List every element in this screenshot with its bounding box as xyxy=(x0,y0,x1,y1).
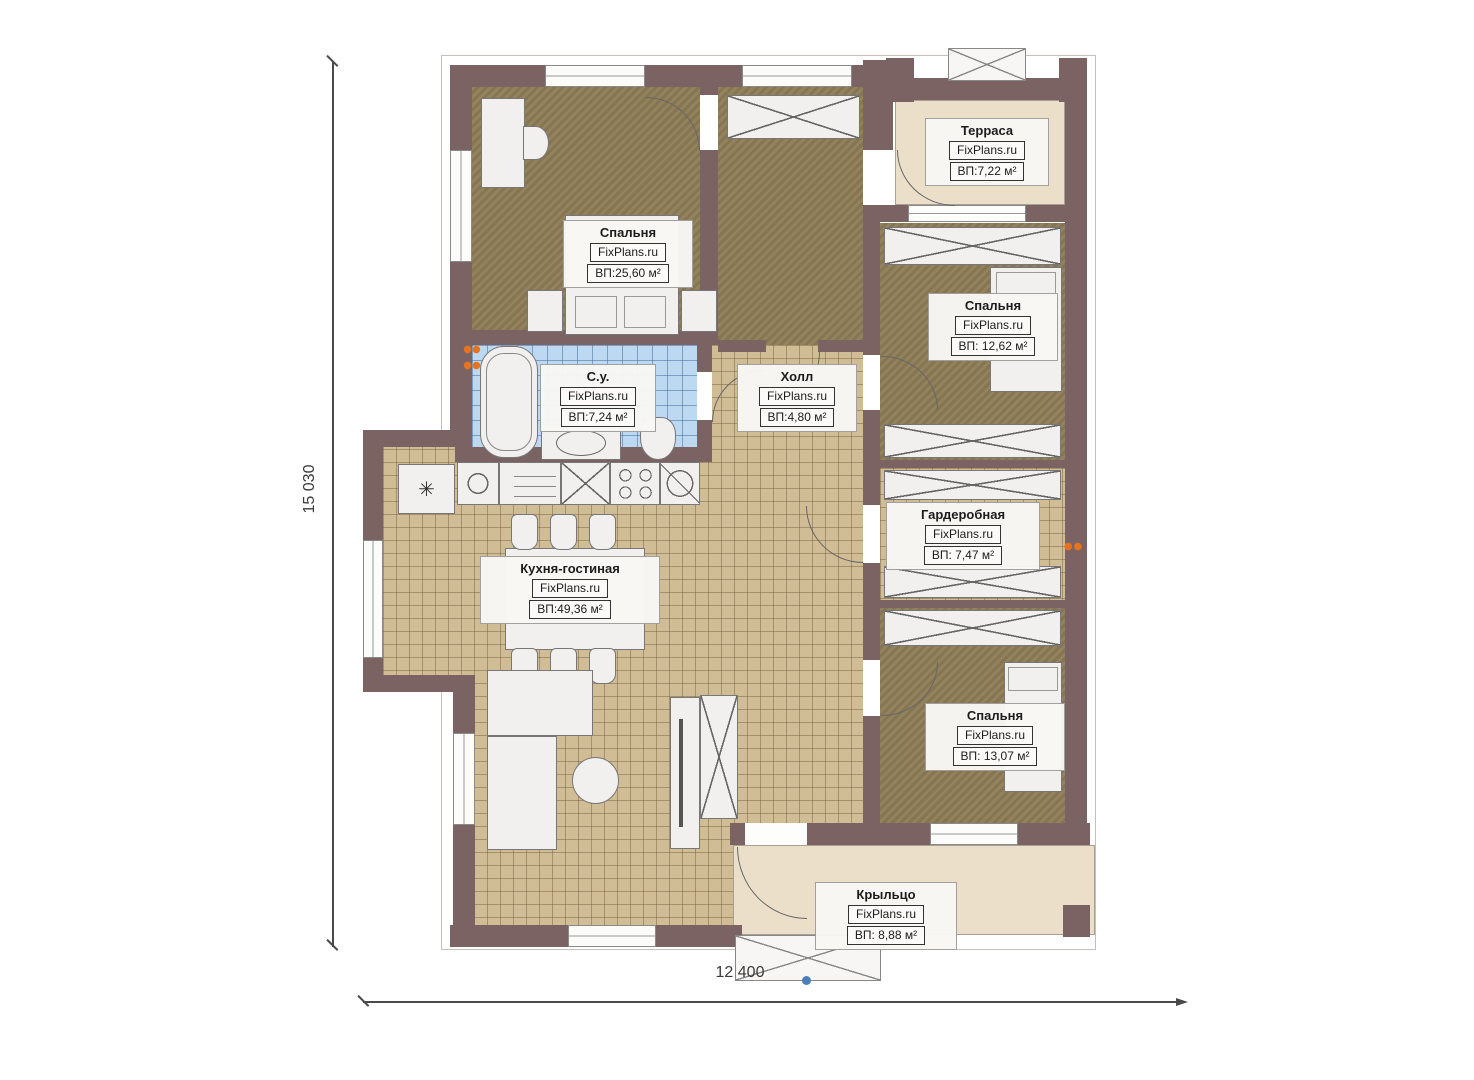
room-area: ВП:7,22 м² xyxy=(950,162,1025,181)
room-name: Спальня xyxy=(965,298,1021,314)
pillow xyxy=(624,296,666,328)
room-brand: FixPlans.ru xyxy=(955,316,1031,335)
room-name: Спальня xyxy=(967,708,1023,724)
room-area: ВП:25,60 м² xyxy=(587,264,669,283)
window xyxy=(363,540,383,658)
wall-segment xyxy=(880,600,1065,608)
chair xyxy=(511,514,538,550)
steps-marker-dot xyxy=(802,976,811,985)
room-label-kitchen-living: Кухня-гостиная FixPlans.ru ВП:49,36 м² xyxy=(480,556,660,624)
wall-segment xyxy=(863,222,880,355)
window xyxy=(450,150,472,262)
room-label-bedroom-3: Спальня FixPlans.ru ВП: 13,07 м² xyxy=(925,703,1065,771)
desk-chair xyxy=(523,126,549,160)
tv-icon xyxy=(679,719,683,827)
desk xyxy=(481,98,525,188)
wardrobe-cabinet xyxy=(884,566,1061,598)
window xyxy=(568,925,656,947)
wall-segment xyxy=(880,460,1065,468)
wall-segment xyxy=(700,87,718,95)
wardrobe-cabinet xyxy=(884,470,1061,500)
room-brand: FixPlans.ru xyxy=(590,243,666,262)
dimension-arrow xyxy=(1176,998,1188,1006)
radiator-icon xyxy=(1062,540,1084,553)
height-dimension-label: 15 030 xyxy=(301,444,323,534)
pillow xyxy=(575,296,617,328)
wall-segment xyxy=(718,340,766,352)
kitchen-cabinet-icon xyxy=(561,462,610,505)
corner-sink-icon xyxy=(457,462,499,505)
room-brand: FixPlans.ru xyxy=(560,387,636,406)
room-name: Терраса xyxy=(961,123,1013,139)
wall-segment xyxy=(863,716,880,823)
window xyxy=(453,733,475,825)
wardrobe-cabinet xyxy=(884,227,1061,265)
room-name: Гардеробная xyxy=(921,507,1005,523)
window xyxy=(742,65,852,87)
chair xyxy=(589,648,616,684)
window xyxy=(545,65,645,87)
room-label-bedroom-1: Спальня FixPlans.ru ВП:25,60 м² xyxy=(563,220,693,288)
room-label-bedroom-2: Спальня FixPlans.ru ВП: 12,62 м² xyxy=(928,293,1058,361)
stove-icon xyxy=(610,462,660,505)
radiator-icon xyxy=(462,344,482,355)
floor-plan-canvas: ✳ Спальня FixPlans.ru ВП:25,60 м² Террас… xyxy=(0,0,1474,1080)
room-name: Кухня-гостиная xyxy=(520,561,620,577)
pillow xyxy=(1008,667,1058,691)
width-dimension-label: 12 400 xyxy=(690,964,790,984)
wardrobe-cabinet xyxy=(884,610,1061,646)
window xyxy=(930,823,1018,845)
vertical-dimension-line xyxy=(332,62,334,947)
wall-segment xyxy=(697,345,712,372)
freezer-icon: ✳ xyxy=(398,464,455,514)
room-area: ВП: 8,88 м² xyxy=(847,926,925,945)
sofa xyxy=(487,670,593,736)
room-brand: FixPlans.ru xyxy=(925,525,1001,544)
window xyxy=(908,205,1026,222)
room-name: Крыльцо xyxy=(856,887,915,903)
room-label-wardrobe-room: Гардеробная FixPlans.ru ВП: 7,47 м² xyxy=(886,502,1040,570)
door-opening xyxy=(745,823,807,845)
room-name: С.у. xyxy=(587,369,610,385)
room-area: ВП: 13,07 м² xyxy=(953,747,1038,766)
room-brand: FixPlans.ru xyxy=(532,579,608,598)
room-name: Спальня xyxy=(600,225,656,241)
wardrobe-cabinet xyxy=(700,695,738,819)
fridge-icon xyxy=(660,462,700,505)
room-brand: FixPlans.ru xyxy=(957,726,1033,745)
room-area: ВП:4,80 м² xyxy=(760,408,835,427)
radiator-icon xyxy=(462,360,482,371)
wall-segment xyxy=(818,340,863,352)
chair xyxy=(550,514,577,550)
sink-basin xyxy=(556,430,606,456)
chair xyxy=(589,514,616,550)
bathtub-inner xyxy=(486,353,532,451)
sofa xyxy=(487,736,557,850)
terrace-pillar xyxy=(1059,58,1087,102)
horizontal-dimension-line xyxy=(363,1001,1185,1003)
room-label-porch: Крыльцо FixPlans.ru ВП: 8,88 м² xyxy=(815,882,957,950)
coffee-table xyxy=(572,757,619,804)
room-name: Холл xyxy=(781,369,814,385)
wall-segment xyxy=(893,78,1087,100)
room-brand: FixPlans.ru xyxy=(848,905,924,924)
wall-segment xyxy=(863,563,880,660)
terrace-steps xyxy=(948,48,1026,81)
room-brand: FixPlans.ru xyxy=(949,141,1025,160)
room-area: ВП: 7,47 м² xyxy=(924,546,1002,565)
room-brand: FixPlans.ru xyxy=(759,387,835,406)
room-label-bathroom: С.у. FixPlans.ru ВП:7,24 м² xyxy=(540,364,656,432)
room-area: ВП:49,36 м² xyxy=(529,600,611,619)
kitchen-drawers-icon xyxy=(499,462,561,505)
nightstand xyxy=(681,290,717,332)
porch-pillar xyxy=(1063,905,1090,937)
wall-segment xyxy=(863,60,893,150)
room-area: ВП: 12,62 м² xyxy=(951,337,1036,356)
wall-segment xyxy=(1065,100,1087,845)
wardrobe-cabinet xyxy=(727,95,860,139)
tv-unit xyxy=(670,697,700,849)
room-label-hall: Холл FixPlans.ru ВП:4,80 м² xyxy=(737,364,857,432)
wall-segment xyxy=(863,410,880,505)
room-area: ВП:7,24 м² xyxy=(561,408,636,427)
nightstand xyxy=(527,290,563,332)
room-label-terrace: Терраса FixPlans.ru ВП:7,22 м² xyxy=(925,118,1049,186)
wardrobe-cabinet xyxy=(884,424,1061,458)
